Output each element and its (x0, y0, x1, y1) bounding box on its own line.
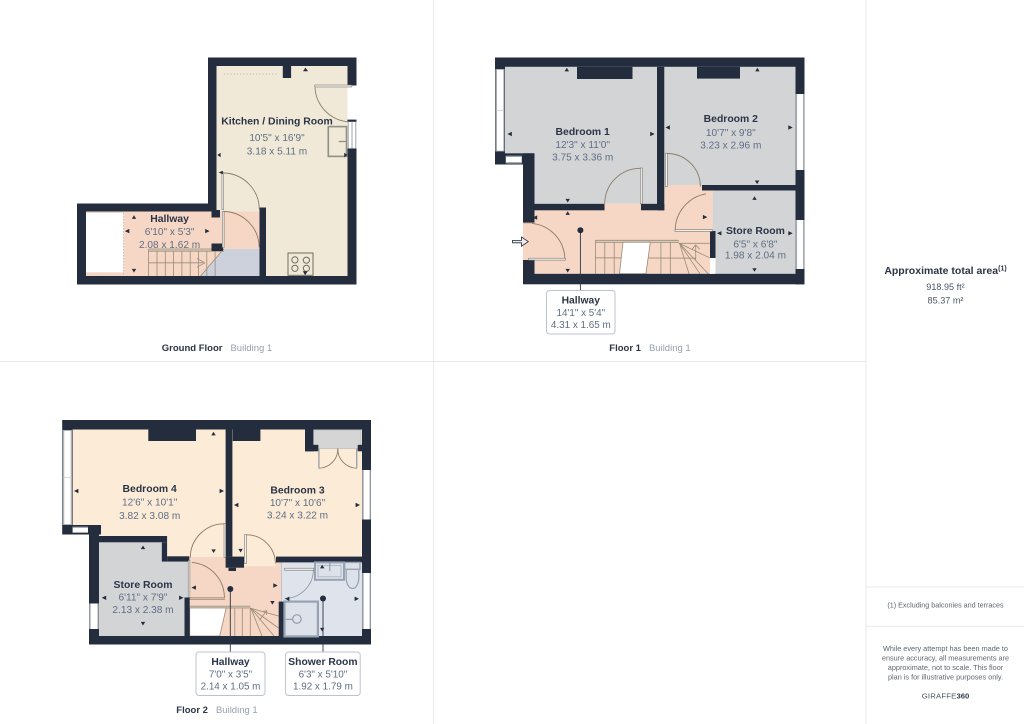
svg-text:3.24 x 3.22 m: 3.24 x 3.22 m (267, 511, 328, 522)
svg-text:Kitchen / Dining Room: Kitchen / Dining Room (221, 116, 332, 127)
svg-text:plan is for illustrative purpo: plan is for illustrative purposes only. (888, 673, 1003, 682)
svg-text:1.92 x 1.79 m: 1.92 x 1.79 m (293, 681, 353, 692)
svg-text:Shower Room: Shower Room (288, 657, 357, 668)
svg-text:10'7" x 9'8": 10'7" x 9'8" (706, 128, 756, 139)
svg-text:Floor 1Building 1: Floor 1Building 1 (609, 343, 690, 354)
svg-text:GIRAFFE360: GIRAFFE360 (922, 691, 970, 700)
svg-text:Hallway: Hallway (150, 214, 189, 225)
svg-text:6'3" x 5'10": 6'3" x 5'10" (299, 669, 348, 680)
svg-text:Bedroom 2: Bedroom 2 (704, 114, 758, 125)
svg-text:3.18 x 5.11 m: 3.18 x 5.11 m (247, 146, 307, 157)
svg-text:3.23 x 2.96 m: 3.23 x 2.96 m (700, 141, 761, 152)
svg-text:Store Room: Store Room (726, 226, 785, 237)
svg-text:3.82 x 3.08 m: 3.82 x 3.08 m (119, 511, 180, 522)
svg-text:6'11" x 7'9": 6'11" x 7'9" (119, 593, 168, 604)
svg-text:2.08 x 1.62 m: 2.08 x 1.62 m (139, 240, 200, 251)
svg-text:Store Room: Store Room (114, 580, 173, 591)
svg-text:Floor 2Building 1: Floor 2Building 1 (176, 705, 257, 716)
svg-text:12'3" x 11'0": 12'3" x 11'0" (555, 140, 610, 151)
svg-text:14'1" x 5'4": 14'1" x 5'4" (556, 308, 605, 319)
svg-text:While every attempt has been m: While every attempt has been made to (883, 644, 1008, 653)
svg-text:85.37 m²: 85.37 m² (928, 296, 964, 306)
svg-text:12'6" x 10'1": 12'6" x 10'1" (122, 498, 178, 509)
svg-text:2.14 x 1.05 m: 2.14 x 1.05 m (201, 681, 261, 692)
svg-text:Bedroom 1: Bedroom 1 (556, 127, 610, 138)
svg-text:10'7" x 10'6": 10'7" x 10'6" (270, 498, 326, 509)
svg-text:Bedroom 3: Bedroom 3 (270, 485, 324, 496)
svg-text:(1) Excluding balconies and te: (1) Excluding balconies and terraces (887, 601, 1004, 610)
svg-text:6'5" x 6'8": 6'5" x 6'8" (733, 240, 778, 251)
svg-text:Bedroom 4: Bedroom 4 (123, 484, 177, 495)
svg-text:Hallway: Hallway (562, 296, 601, 307)
svg-text:1.98 x 2.04 m: 1.98 x 2.04 m (725, 250, 786, 261)
svg-text:918.95 ft²: 918.95 ft² (926, 282, 964, 292)
svg-text:4.31 x 1.65 m: 4.31 x 1.65 m (551, 320, 611, 331)
svg-text:Approximate total area(1): Approximate total area(1) (884, 265, 1006, 277)
svg-text:6'10" x 5'3": 6'10" x 5'3" (145, 227, 195, 238)
svg-text:approximate, not to scale. Thi: approximate, not to scale. This floor (888, 663, 1004, 672)
svg-text:Ground FloorBuilding 1: Ground FloorBuilding 1 (162, 343, 272, 354)
svg-text:10'5" x 16'9": 10'5" x 16'9" (249, 133, 305, 144)
svg-text:Hallway: Hallway (211, 657, 250, 668)
svg-text:ensure accuracy, all measureme: ensure accuracy, all measurements are (882, 654, 1009, 663)
svg-text:7'0" x 3'5": 7'0" x 3'5" (209, 669, 253, 680)
svg-text:3.75 x 3.36 m: 3.75 x 3.36 m (552, 153, 613, 164)
svg-text:2.13 x 2.38 m: 2.13 x 2.38 m (112, 605, 173, 616)
